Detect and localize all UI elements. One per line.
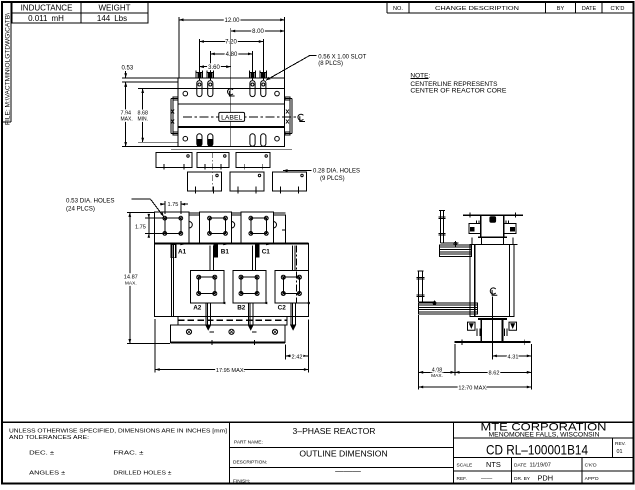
svg-text:0.56 X 1.00 SLOT: 0.56 X 1.00 SLOT: [318, 55, 366, 61]
svg-text:MIN.: MIN.: [138, 117, 149, 123]
svg-text:PDH: PDH: [538, 473, 554, 482]
svg-text:(9 PLCS): (9 PLCS): [320, 176, 345, 182]
svg-text:MAX.: MAX.: [125, 280, 137, 286]
svg-text:01: 01: [617, 449, 623, 455]
svg-text:——: ——: [481, 476, 493, 482]
svg-text:144 Lbs: 144 Lbs: [97, 14, 127, 23]
svg-text:4.80: 4.80: [226, 52, 238, 58]
svg-text:14.87: 14.87: [124, 274, 138, 280]
svg-text:11/19/07: 11/19/07: [530, 463, 551, 469]
svg-text:DATE: DATE: [514, 462, 526, 468]
svg-text:DR. BY: DR. BY: [514, 476, 531, 482]
svg-text:12.00: 12.00: [224, 18, 240, 24]
svg-text:MENOMONEE FALLS, WISCONSIN: MENOMONEE FALLS, WISCONSIN: [489, 432, 600, 439]
svg-text:0.28 DIA. HOLES: 0.28 DIA. HOLES: [313, 169, 360, 175]
svg-text:FINISH:: FINISH:: [233, 479, 250, 485]
svg-text:(8 PLCS): (8 PLCS): [318, 61, 343, 67]
svg-text:C'K'D: C'K'D: [585, 462, 597, 468]
svg-text:———: ———: [335, 466, 361, 476]
svg-text:12.70 MAX.: 12.70 MAX.: [458, 385, 488, 391]
svg-text:7.20: 7.20: [225, 40, 237, 46]
svg-text:17.95 MAX.: 17.95 MAX.: [216, 368, 246, 374]
svg-text:UNLESS OTHERWISE SPECIFIED,: UNLESS OTHERWISE SPECIFIED, DIMENSIONS A…: [9, 429, 227, 435]
svg-text:PART NAME:: PART NAME:: [234, 440, 263, 446]
svg-text:8.00: 8.00: [252, 29, 264, 35]
svg-text:B1: B1: [221, 249, 230, 256]
svg-text:CHANGE DESCRIPTION: CHANGE DESCRIPTION: [435, 6, 519, 12]
svg-text:INDUCTANCE: INDUCTANCE: [21, 4, 73, 13]
svg-text:2.42: 2.42: [292, 354, 303, 360]
svg-text:SCALE: SCALE: [457, 462, 473, 468]
svg-text:0.011 mH: 0.011 mH: [28, 14, 64, 23]
svg-text:ANGLES ±: ANGLES ±: [29, 471, 65, 477]
svg-text:APP'D: APP'D: [585, 476, 600, 482]
svg-text:BY: BY: [557, 6, 565, 12]
svg-text:LABEL: LABEL: [221, 114, 242, 121]
svg-text:REV.: REV.: [615, 441, 626, 447]
svg-text:0.53 DIA. HOLES: 0.53 DIA. HOLES: [66, 197, 115, 204]
svg-text:A2: A2: [193, 304, 202, 311]
svg-text:C2: C2: [278, 304, 287, 311]
svg-text:0.53: 0.53: [122, 66, 134, 72]
svg-text:FILE: M:\VACTMIN\OLGTDWG\CATB\: FILE: M:\VACTMIN\OLGTDWG\CATB\: [6, 13, 12, 125]
svg-text:(24 PLCS): (24 PLCS): [66, 205, 95, 212]
svg-text:8.62: 8.62: [489, 371, 500, 377]
svg-text:3–PHASE REACTOR: 3–PHASE REACTOR: [293, 426, 376, 436]
svg-text:CD RL–100001B14: CD RL–100001B14: [486, 442, 588, 458]
svg-text:4.31: 4.31: [508, 354, 519, 360]
svg-text:NTS: NTS: [486, 460, 501, 469]
svg-text:4.08: 4.08: [432, 367, 443, 373]
svg-text:1.75: 1.75: [135, 224, 146, 230]
svg-text:NO.: NO.: [393, 6, 403, 12]
svg-text:C1: C1: [262, 249, 271, 256]
svg-text:FRAC. ±: FRAC. ±: [113, 450, 143, 456]
svg-text:DATE: DATE: [582, 6, 597, 12]
svg-text:B2: B2: [237, 304, 246, 311]
svg-text:DEC. ±: DEC. ±: [29, 450, 54, 456]
svg-text:MAX.: MAX.: [431, 373, 443, 379]
svg-text:1.75: 1.75: [167, 202, 178, 208]
svg-text:3.60: 3.60: [208, 65, 220, 71]
svg-text:A1: A1: [178, 249, 187, 256]
svg-text:MAX.: MAX.: [121, 117, 133, 123]
svg-text:DRILLED HOLES ±: DRILLED HOLES ±: [113, 471, 171, 477]
svg-text:AND TOLERANCES ARE:: AND TOLERANCES ARE:: [9, 435, 89, 441]
svg-text:WEIGHT: WEIGHT: [99, 4, 131, 13]
svg-text:DESCRIPTION:: DESCRIPTION:: [233, 460, 267, 466]
svg-text:REF.: REF.: [457, 476, 467, 482]
svg-text:C'K'D: C'K'D: [611, 6, 625, 12]
svg-text:OUTLINE DIMENSION: OUTLINE DIMENSION: [299, 448, 387, 458]
svg-text:CENTER OF REACTOR CORE: CENTER OF REACTOR CORE: [410, 88, 507, 95]
